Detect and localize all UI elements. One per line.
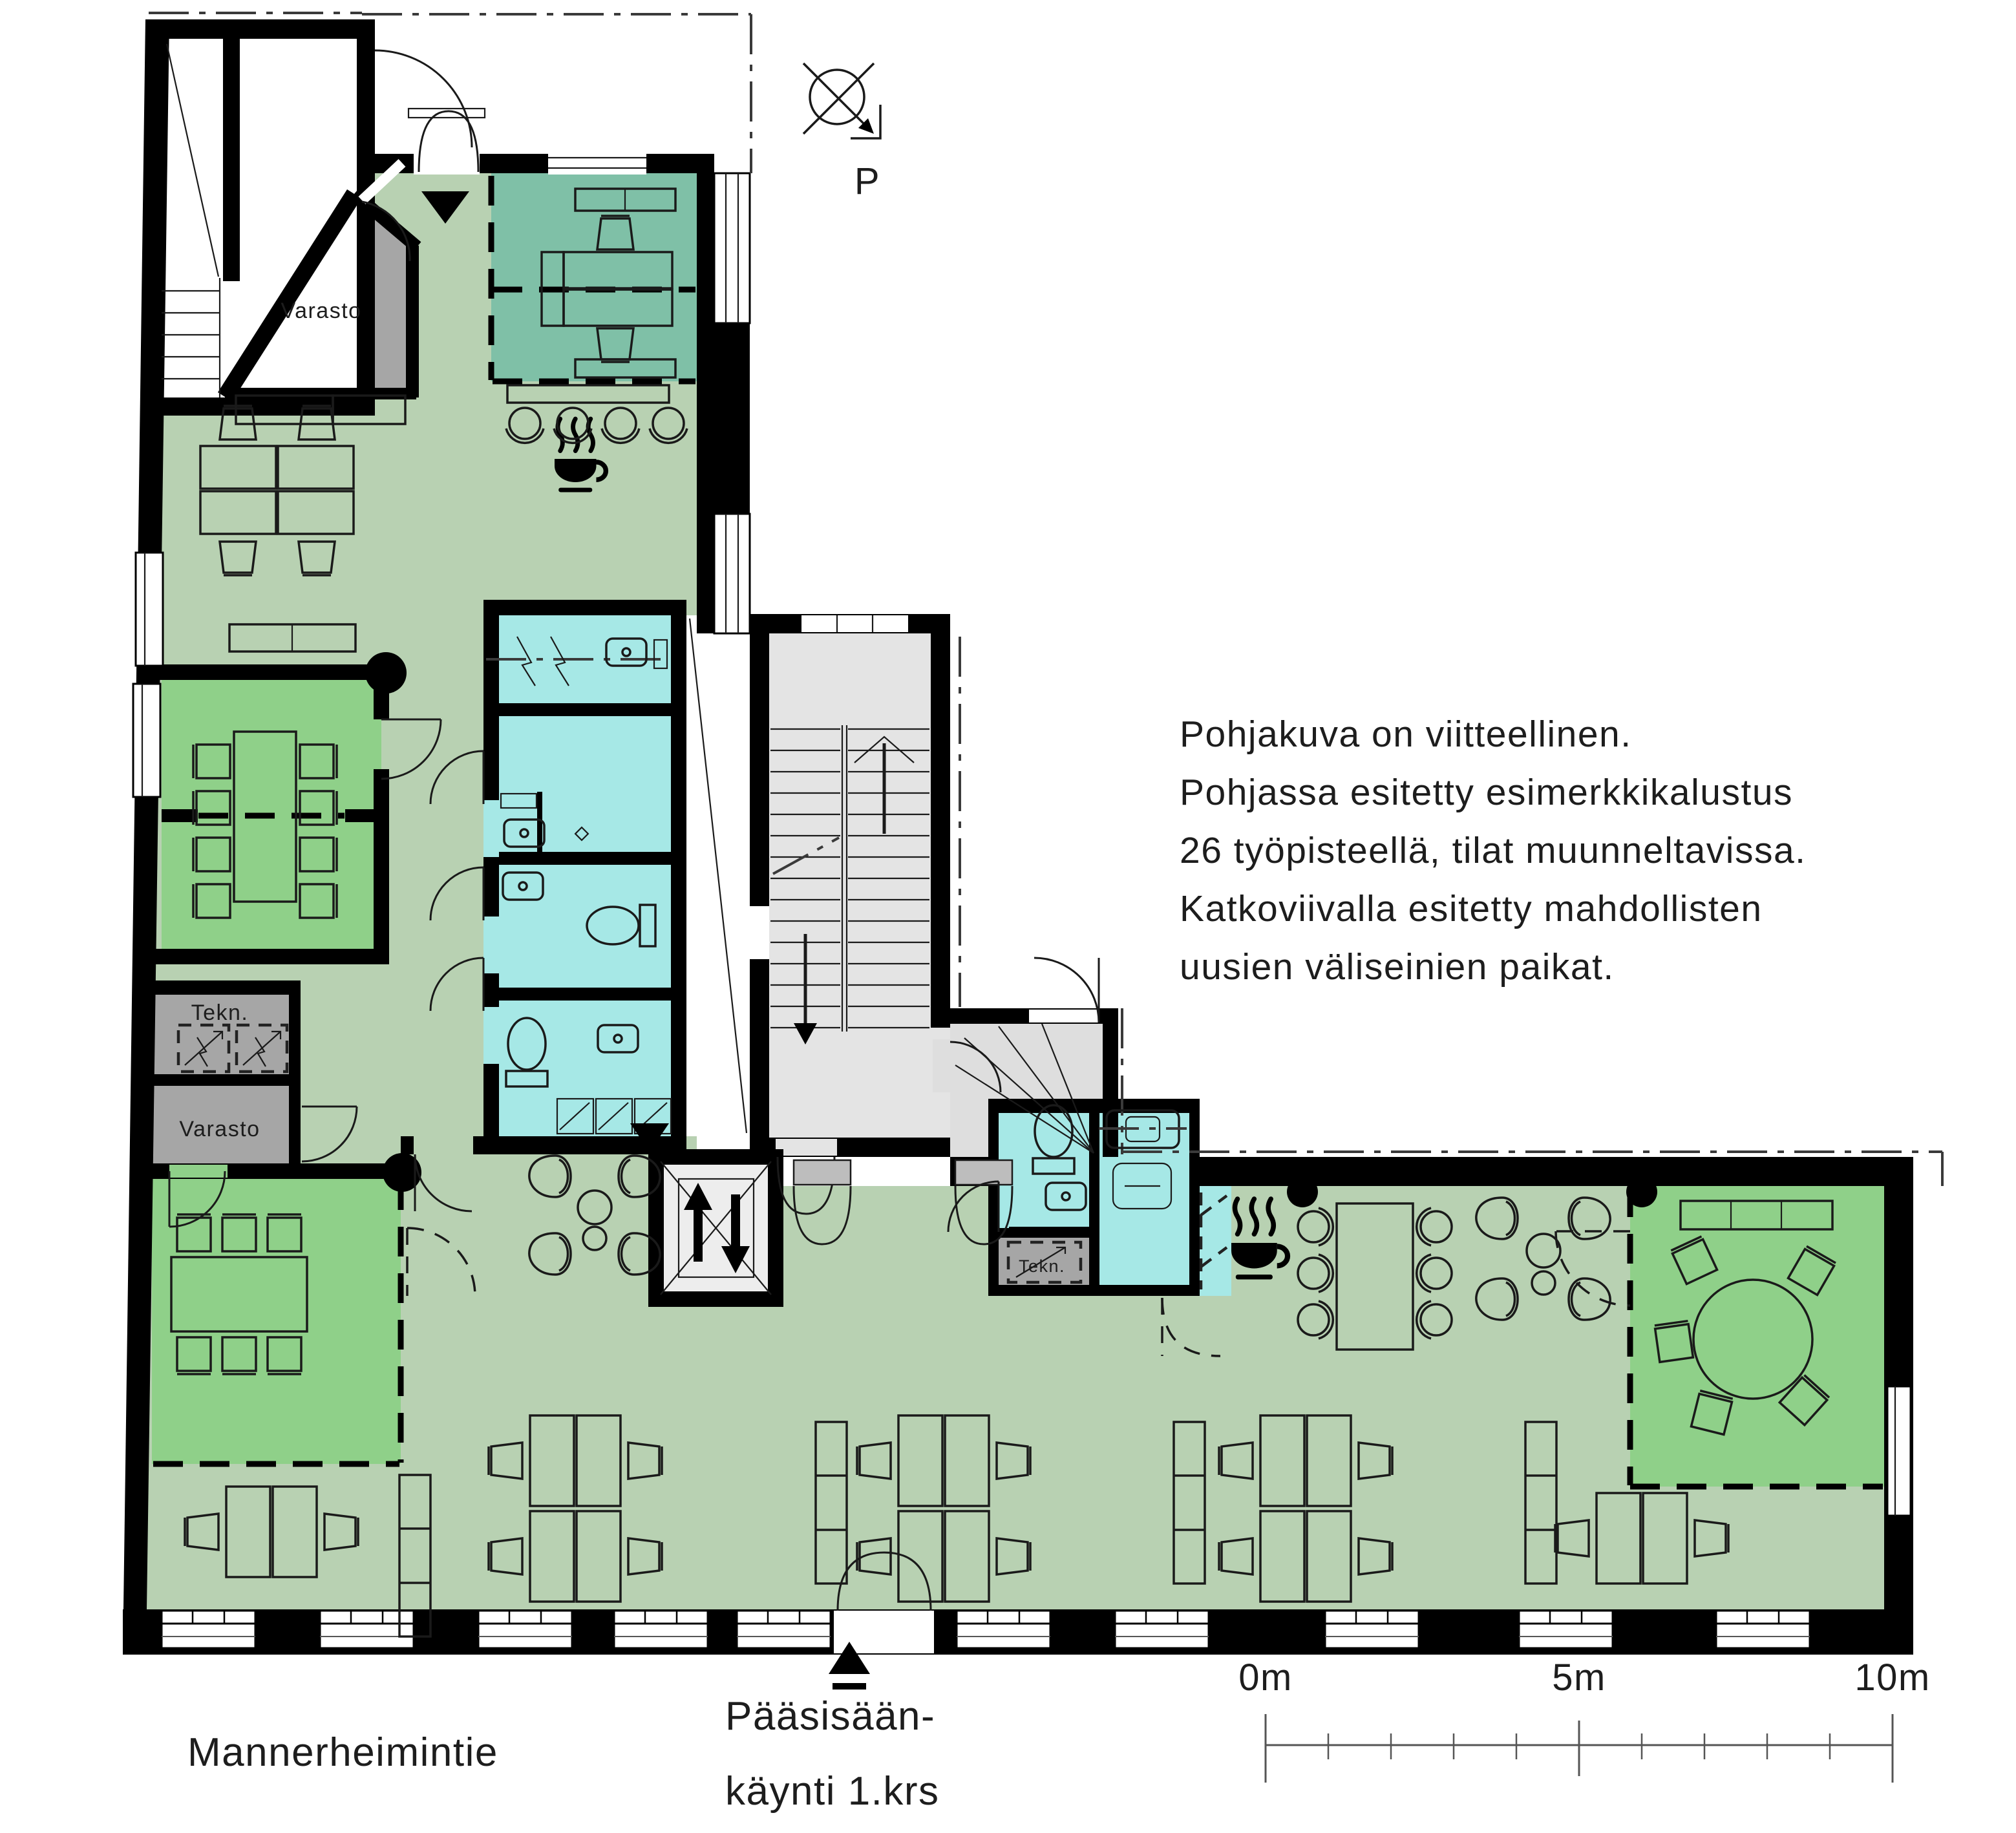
scale-10m: 10m <box>1854 1657 1930 1699</box>
entrance-label-line2: käynti 1.krs <box>725 1769 940 1814</box>
floor-plan-drawing: P 0m 5m 10m Varasto Tekn. Varasto Tekn. … <box>0 0 2016 1833</box>
room-fills <box>127 36 1884 1611</box>
varasto-upper-label: Varasto <box>281 299 361 323</box>
scale-bar: 0m 5m 10m <box>1238 1657 1930 1783</box>
annotation-line: Pohjakuva on viitteellinen. <box>1180 714 1632 755</box>
annotation-line: uusien väliseinien paikat. <box>1180 946 1615 988</box>
door-leaf <box>794 1160 851 1185</box>
varasto-lower-label: Varasto <box>179 1117 260 1141</box>
street-label: Mannerheimintie <box>187 1730 498 1775</box>
stairwell <box>750 614 950 1157</box>
entrance-label-line1: Pääsisään- <box>725 1694 935 1739</box>
room-focus-teal <box>491 173 697 381</box>
room-meeting-right <box>1630 1186 1884 1487</box>
annotation-line: Pohjassa esitetty esimerkkikalustus <box>1180 772 1793 813</box>
scale-0m: 0m <box>1238 1657 1293 1699</box>
tekn-right-label: Tekn. <box>1019 1256 1065 1276</box>
floor-plan-page: P 0m 5m 10m Varasto Tekn. Varasto Tekn. … <box>0 0 2016 1833</box>
annotation-line: Katkoviivalla esitetty mahdollisten <box>1180 888 1763 929</box>
scale-5m: 5m <box>1552 1657 1606 1699</box>
north-arrow-icon: P <box>803 63 880 202</box>
street-and-entrance-labels: Mannerheimintie Pääsisään- käynti 1.krs <box>187 1694 940 1814</box>
annotation-line: 26 työpisteellä, tilat muunneltavissa. <box>1180 830 1807 871</box>
tekn-left-label: Tekn. <box>191 1001 249 1025</box>
annotation-block: Pohjakuva on viitteellinen. Pohjassa esi… <box>1180 714 1807 988</box>
north-label: P <box>854 160 880 202</box>
room-meeting-6p <box>152 1178 401 1464</box>
door-leaf <box>955 1160 1012 1185</box>
